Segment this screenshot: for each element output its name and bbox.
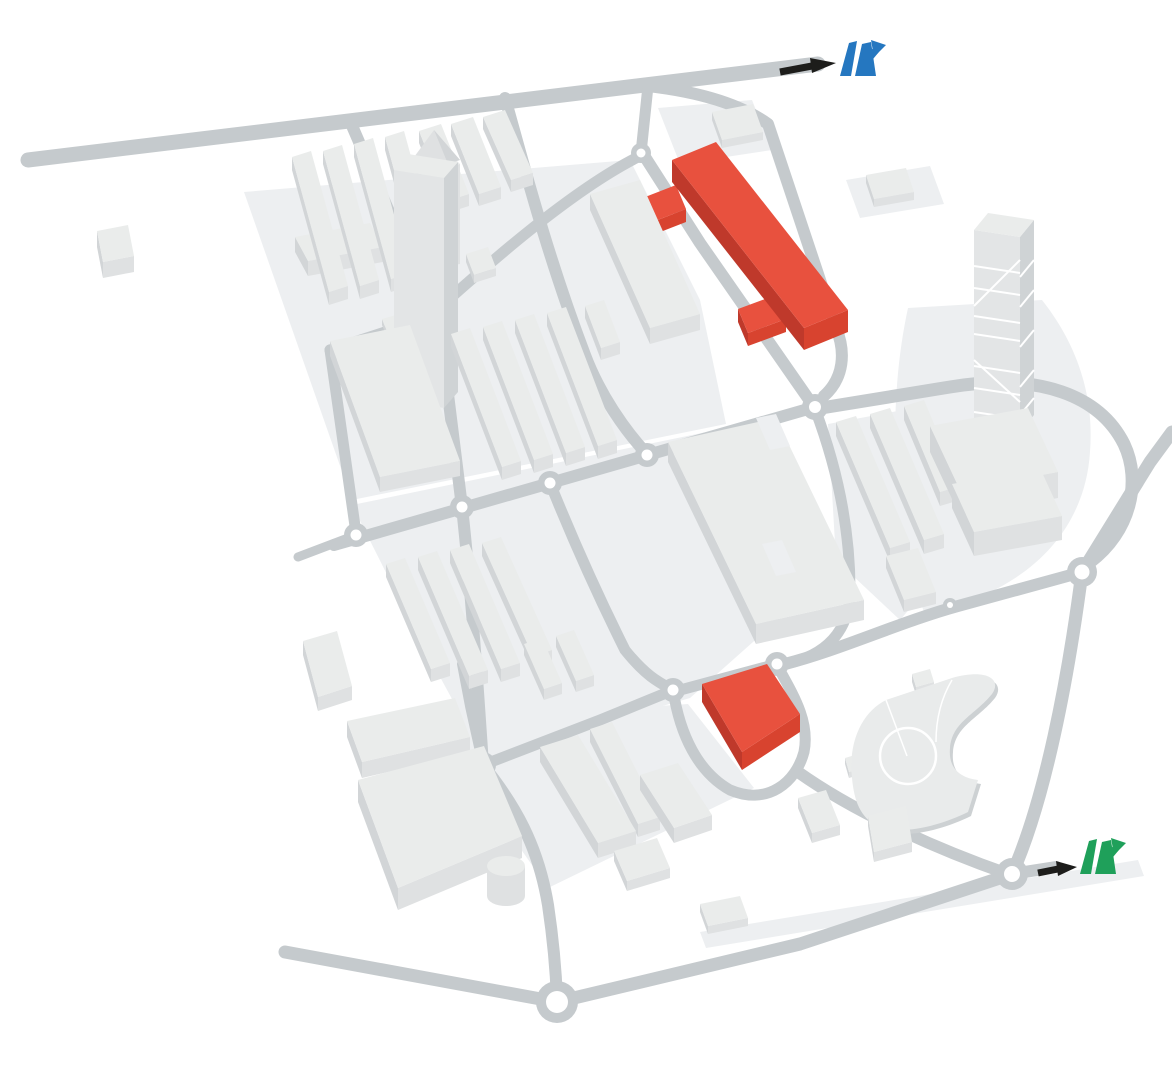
building bbox=[303, 631, 352, 711]
roundabout bbox=[661, 678, 685, 702]
campus-map bbox=[0, 0, 1172, 1068]
building bbox=[868, 806, 912, 862]
roundabout bbox=[635, 443, 659, 467]
roundabout bbox=[450, 495, 474, 519]
roundabout bbox=[631, 143, 651, 163]
building bbox=[952, 468, 1062, 556]
roundabout bbox=[536, 981, 578, 1023]
horseshoe-building bbox=[851, 674, 998, 834]
building bbox=[712, 104, 763, 148]
roundabout bbox=[1067, 557, 1097, 587]
building-side-face bbox=[444, 162, 458, 408]
roundabout bbox=[802, 394, 828, 420]
map-canvas bbox=[0, 0, 1172, 1068]
roundabout bbox=[943, 598, 957, 612]
roundabout bbox=[344, 523, 368, 547]
roundabout bbox=[538, 471, 562, 495]
road bbox=[641, 86, 648, 153]
roundabout bbox=[996, 858, 1028, 890]
road bbox=[285, 952, 557, 1002]
building-side-face bbox=[974, 230, 1020, 432]
building-top-face bbox=[303, 631, 352, 697]
building bbox=[97, 225, 134, 278]
road bbox=[557, 874, 1012, 1002]
motorway-junction-icon-blue[interactable] bbox=[840, 40, 886, 76]
building bbox=[866, 168, 914, 207]
striped-tower bbox=[974, 213, 1034, 432]
icon-lane bbox=[840, 41, 857, 76]
road bbox=[1012, 572, 1082, 874]
building-top-face bbox=[97, 225, 134, 262]
